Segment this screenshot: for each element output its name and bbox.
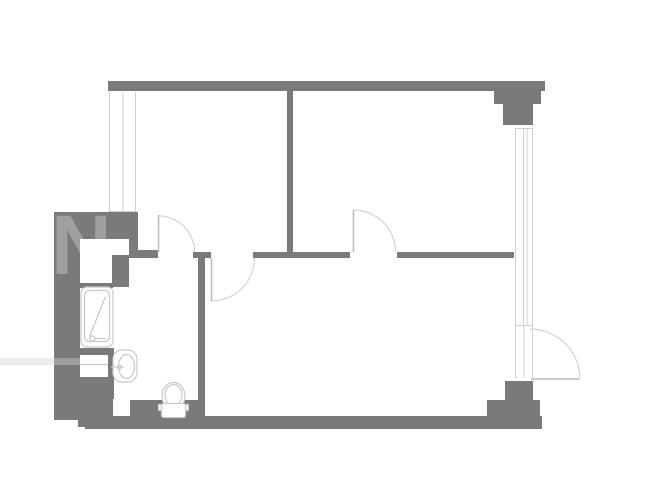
interior-wall-horizontal-seg2	[193, 252, 211, 258]
door-arc-room1	[159, 216, 195, 252]
floor-plan: N	[0, 0, 653, 489]
interior-wall-horizontal-seg3	[253, 252, 350, 258]
interior-wall-horizontal-seg1	[129, 250, 158, 258]
floor-plan-page: N	[0, 0, 653, 489]
toilet	[159, 383, 189, 418]
top-right-pilaster-step	[503, 104, 533, 125]
door-arc-room2	[354, 210, 396, 252]
right-window	[515, 129, 533, 326]
bottom-notch	[113, 399, 130, 416]
watermark-band-on-wall	[54, 358, 80, 365]
balcony-door-frame	[516, 326, 533, 378]
watermark-band	[0, 358, 54, 365]
bathroom-step	[112, 255, 129, 287]
bottom-right-pilaster	[487, 400, 540, 416]
windows	[108, 92, 533, 378]
door-arc-balcony	[530, 329, 580, 379]
door-leaves	[159, 210, 581, 379]
top-right-pilaster	[494, 91, 541, 104]
bathtub	[81, 287, 113, 347]
sink	[111, 350, 137, 382]
watermark-letter: N	[51, 198, 112, 292]
interior-wall-horizontal-seg4	[397, 252, 514, 258]
bottom-left-wedge	[78, 414, 88, 427]
left-window	[108, 92, 137, 212]
shelf-niche	[80, 355, 108, 377]
bathroom-top-strip	[129, 239, 138, 250]
bottom-right-pilaster-step	[505, 381, 533, 400]
bathroom-east-wall	[198, 258, 205, 417]
door-arc-bathroom	[212, 258, 255, 301]
top-wall	[108, 81, 545, 91]
bottom-wall	[85, 416, 542, 429]
interior-wall-vertical-top	[287, 91, 293, 252]
door-arcs	[159, 210, 581, 379]
